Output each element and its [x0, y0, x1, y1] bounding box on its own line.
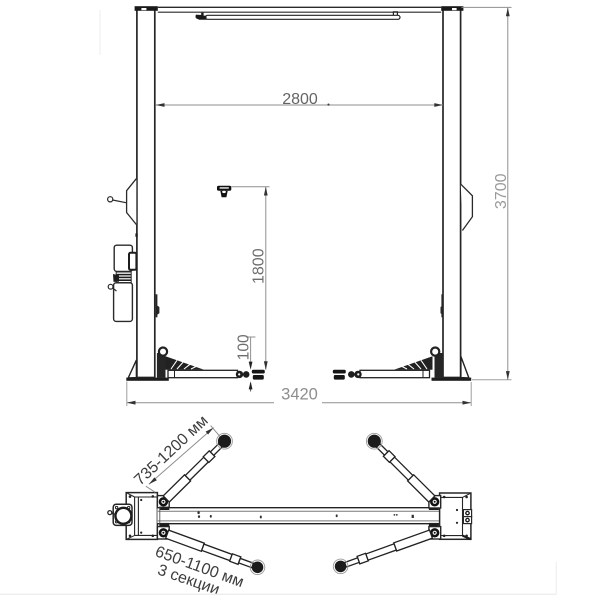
svg-text:735-1200 мм: 735-1200 мм — [131, 412, 211, 489]
svg-text:100: 100 — [236, 334, 253, 360]
svg-text:3700: 3700 — [493, 173, 510, 209]
svg-text:3420: 3420 — [281, 385, 318, 403]
svg-text:2800: 2800 — [282, 91, 318, 108]
svg-text:1800: 1800 — [250, 248, 267, 284]
